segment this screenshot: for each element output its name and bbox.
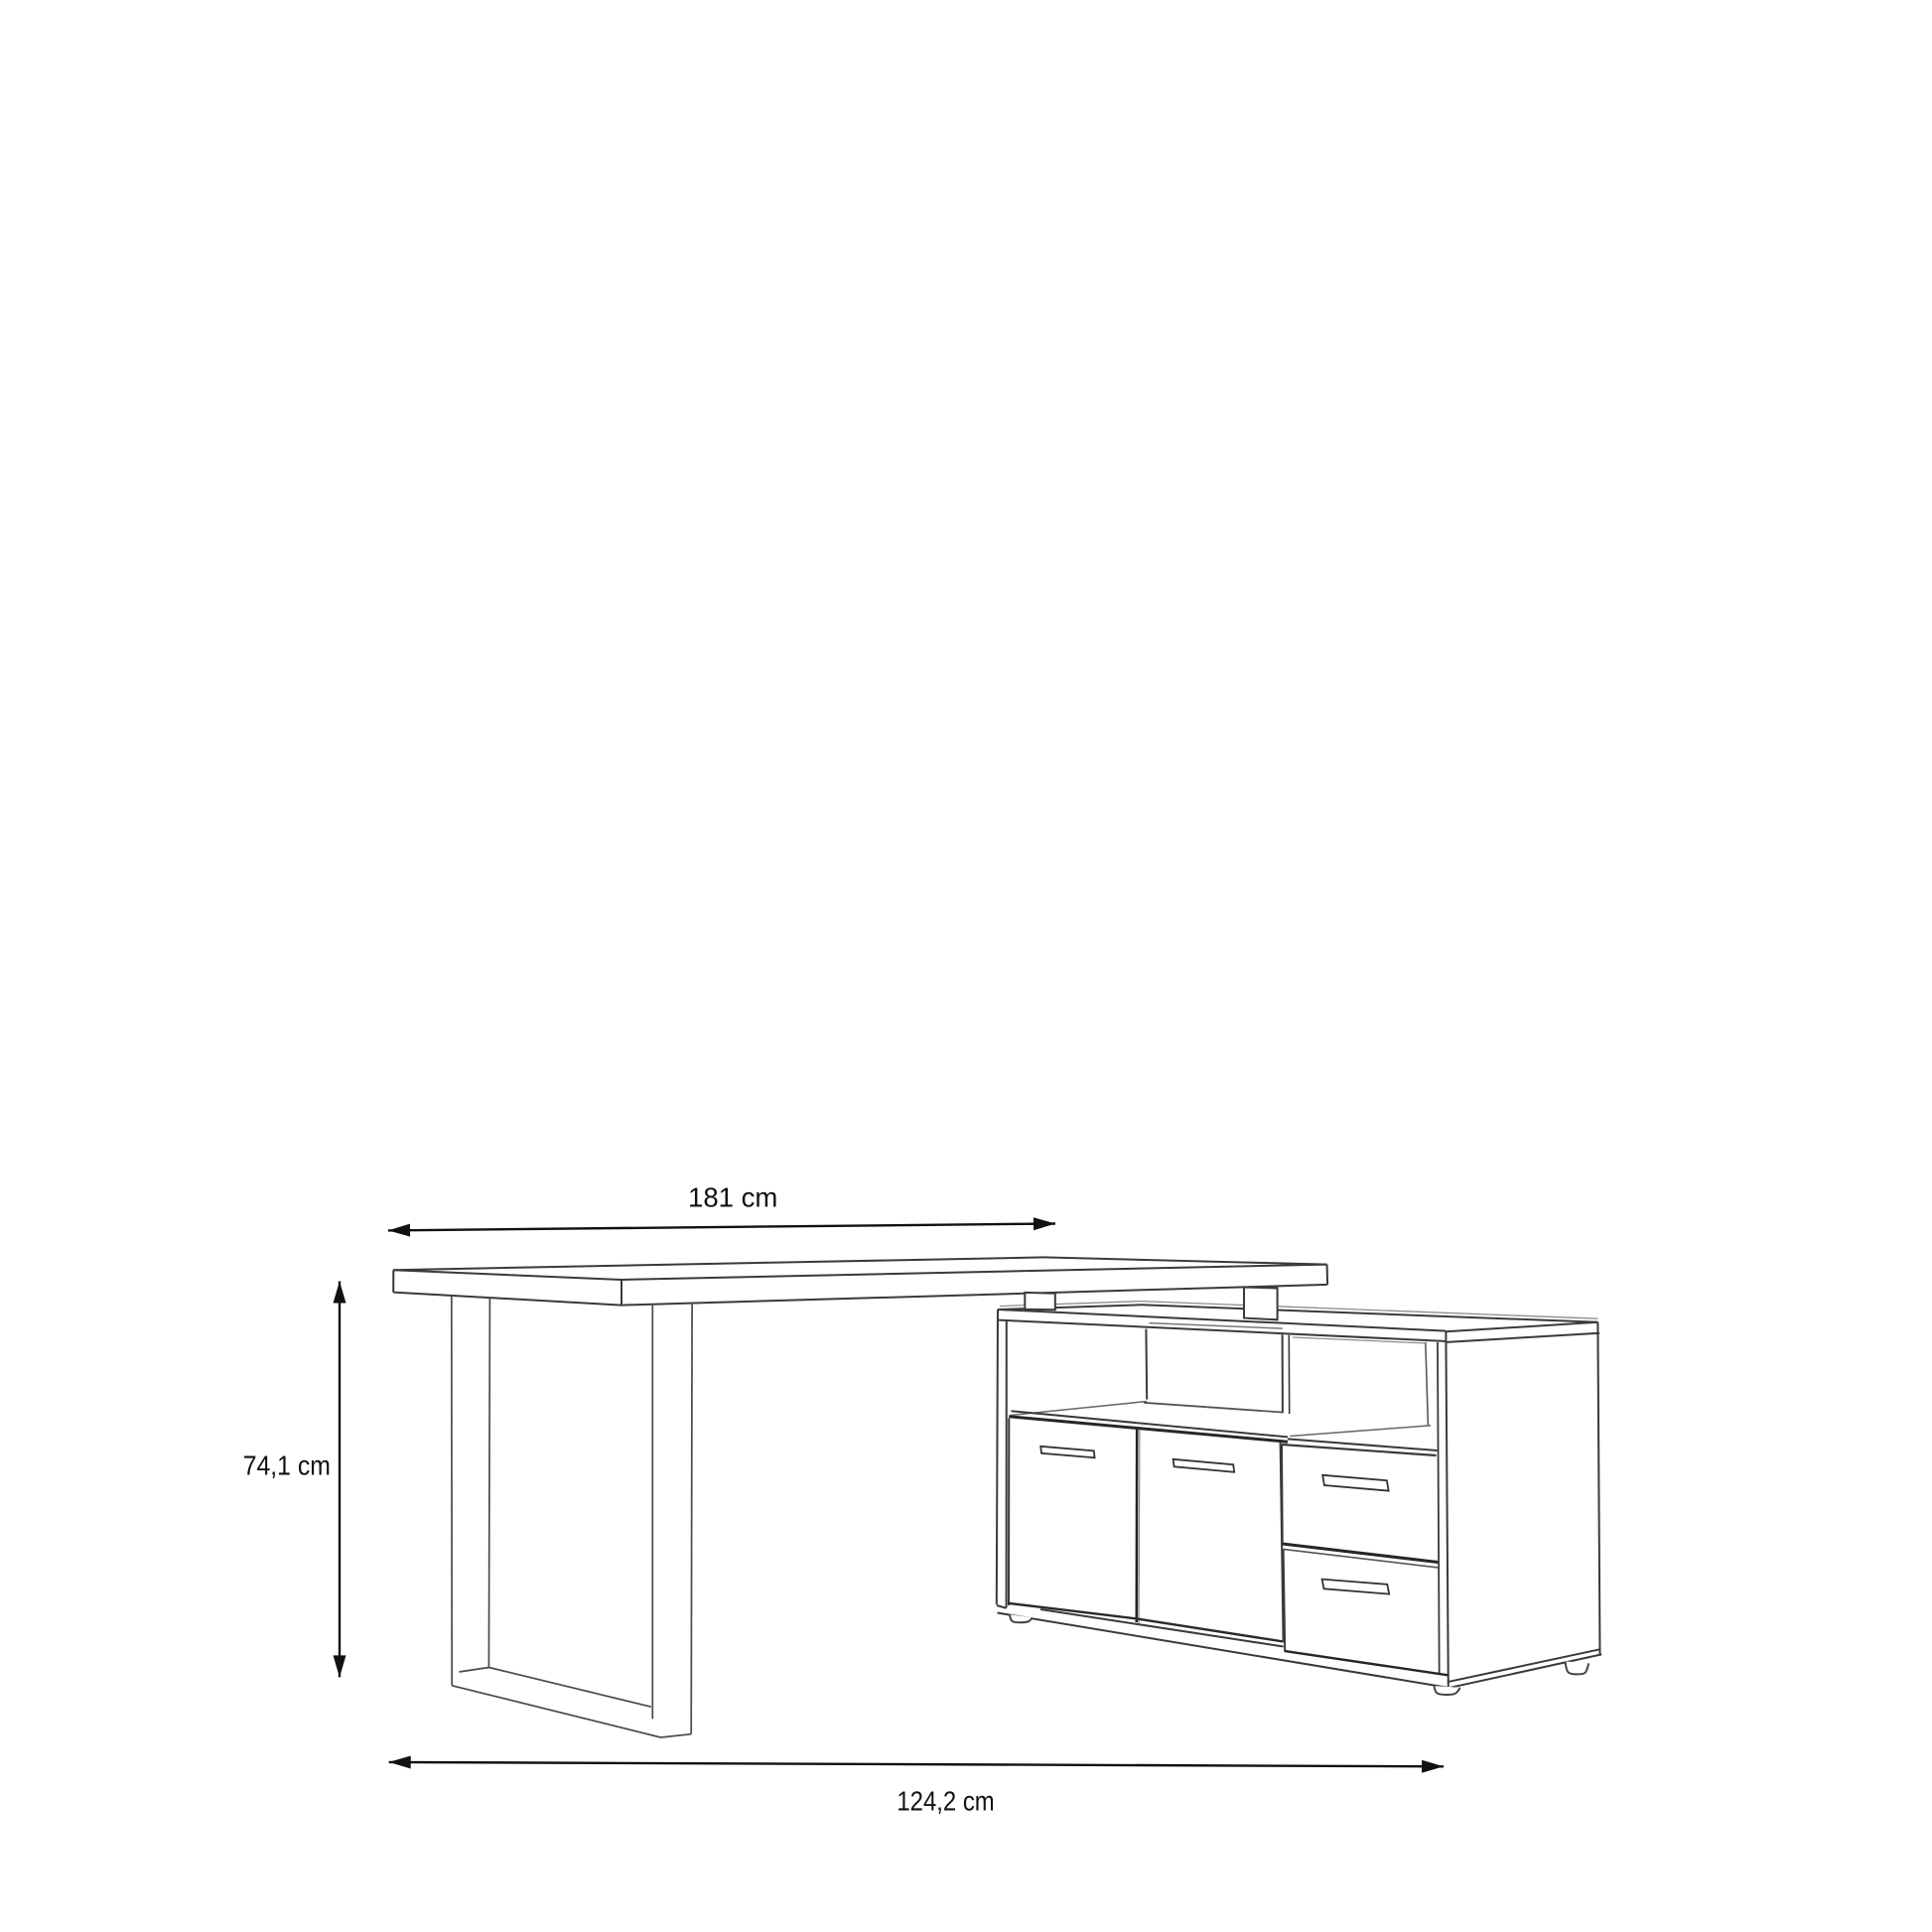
svg-text:74,1 cm: 74,1 cm	[243, 1449, 331, 1480]
svg-text:124,2 cm: 124,2 cm	[897, 1785, 994, 1816]
svg-text:181 cm: 181 cm	[688, 1182, 777, 1213]
